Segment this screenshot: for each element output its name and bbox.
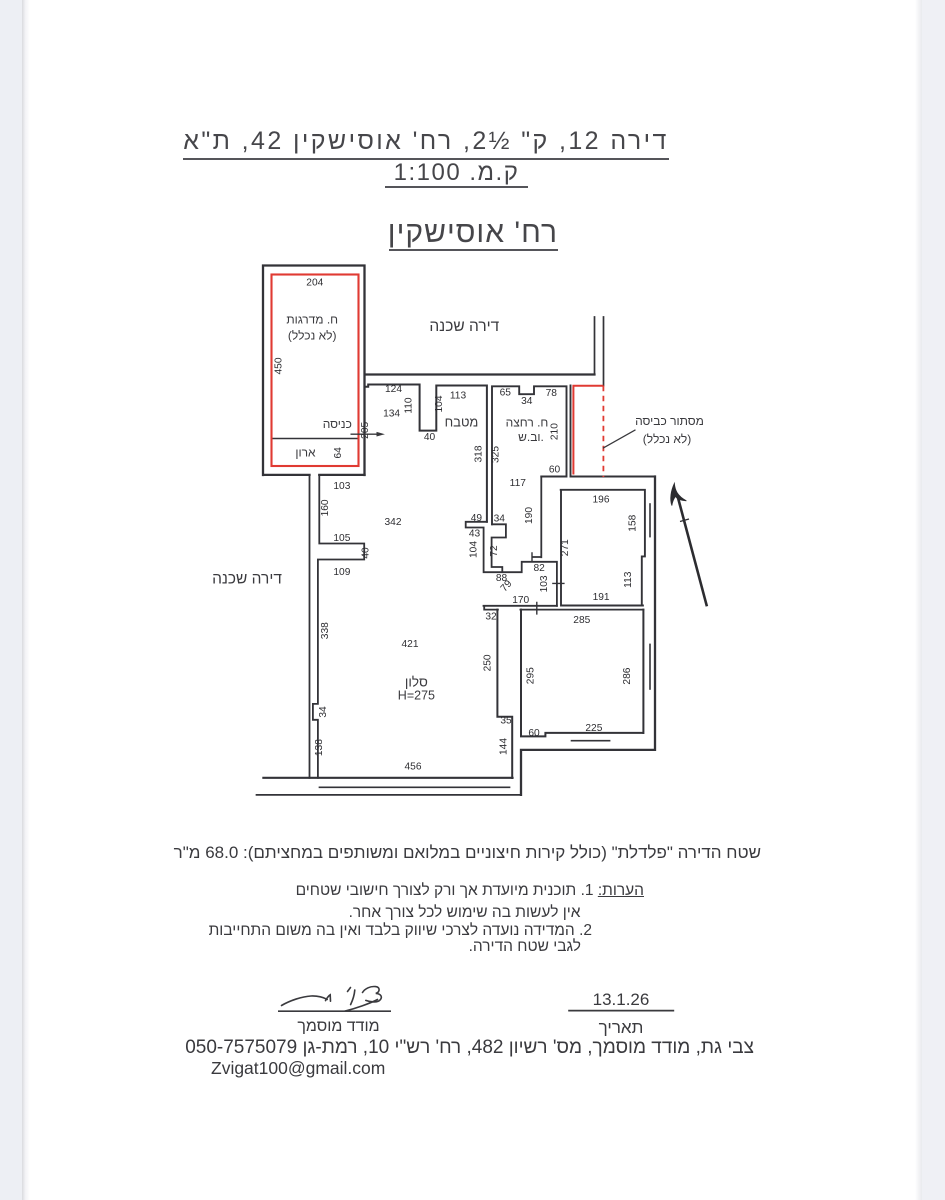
svg-text:338: 338 xyxy=(320,622,331,639)
svg-text:104: 104 xyxy=(469,541,480,558)
svg-text:456: 456 xyxy=(405,762,422,773)
svg-text:196: 196 xyxy=(593,495,610,506)
svg-text:72: 72 xyxy=(489,545,500,557)
svg-text:124: 124 xyxy=(385,384,402,395)
svg-text:138: 138 xyxy=(314,739,325,756)
svg-text:סלון: סלון xyxy=(405,674,428,689)
svg-text:170: 170 xyxy=(512,595,529,606)
svg-text:104: 104 xyxy=(434,395,445,412)
svg-text:134: 134 xyxy=(383,408,400,419)
svg-text:כניסה: כניסה xyxy=(323,417,352,431)
svg-text:(לא נכלל): (לא נכלל) xyxy=(288,329,337,343)
svg-text:103: 103 xyxy=(539,575,550,592)
svg-text:32: 32 xyxy=(485,612,497,623)
svg-text:144: 144 xyxy=(498,738,509,755)
svg-text:191: 191 xyxy=(593,592,610,603)
svg-text:H=275: H=275 xyxy=(398,689,435,703)
svg-text:דירה שכנה: דירה שכנה xyxy=(429,318,499,335)
svg-text:43: 43 xyxy=(469,529,481,540)
svg-text:110: 110 xyxy=(404,397,415,414)
svg-text:82: 82 xyxy=(534,563,546,574)
svg-text:דירה שכנה: דירה שכנה xyxy=(212,571,282,588)
svg-text:271: 271 xyxy=(560,539,571,556)
svg-text:285: 285 xyxy=(573,615,590,626)
svg-text:190: 190 xyxy=(524,507,535,524)
svg-text:318: 318 xyxy=(473,445,484,462)
svg-text:342: 342 xyxy=(385,517,402,528)
svg-text:ח. מדרגות: ח. מדרגות xyxy=(286,313,338,327)
svg-text:40: 40 xyxy=(361,547,372,559)
svg-text:34: 34 xyxy=(318,706,329,718)
svg-text:160: 160 xyxy=(320,499,331,516)
svg-text:64: 64 xyxy=(333,447,344,459)
svg-text:(לא נכלל): (לא נכלל) xyxy=(643,432,692,446)
svg-text:450: 450 xyxy=(274,357,285,374)
svg-text:113: 113 xyxy=(623,571,634,588)
svg-text:205: 205 xyxy=(360,421,371,438)
svg-text:325: 325 xyxy=(490,446,501,463)
svg-text:250: 250 xyxy=(483,654,494,671)
svg-text:295: 295 xyxy=(526,667,537,684)
svg-text:34: 34 xyxy=(494,514,506,525)
svg-text:34: 34 xyxy=(521,396,533,407)
svg-text:ח. רחצה: ח. רחצה xyxy=(506,416,549,430)
svg-text:204: 204 xyxy=(306,278,323,289)
svg-text:158: 158 xyxy=(627,514,638,531)
svg-text:40: 40 xyxy=(424,432,436,443)
svg-text:60: 60 xyxy=(549,465,561,476)
svg-text:78: 78 xyxy=(546,388,558,399)
svg-text:286: 286 xyxy=(622,667,633,684)
svg-text:60: 60 xyxy=(528,728,540,739)
svg-text:49: 49 xyxy=(471,513,483,524)
svg-text:109: 109 xyxy=(333,567,350,578)
svg-text:421: 421 xyxy=(402,639,419,650)
svg-text:210: 210 xyxy=(550,423,561,440)
svg-text:ארון: ארון xyxy=(295,445,316,459)
svg-text:117: 117 xyxy=(510,478,527,489)
svg-text:מטבח: מטבח xyxy=(445,415,479,430)
svg-text:מסתור כביסה: מסתור כביסה xyxy=(635,414,704,428)
svg-text:35: 35 xyxy=(500,716,512,727)
svg-text:105: 105 xyxy=(333,533,350,544)
svg-text:65: 65 xyxy=(500,388,512,399)
svg-text:113: 113 xyxy=(450,390,467,401)
svg-text:וב.ש.: וב.ש. xyxy=(518,430,544,444)
svg-text:103: 103 xyxy=(333,481,350,492)
svg-text:225: 225 xyxy=(585,723,602,734)
